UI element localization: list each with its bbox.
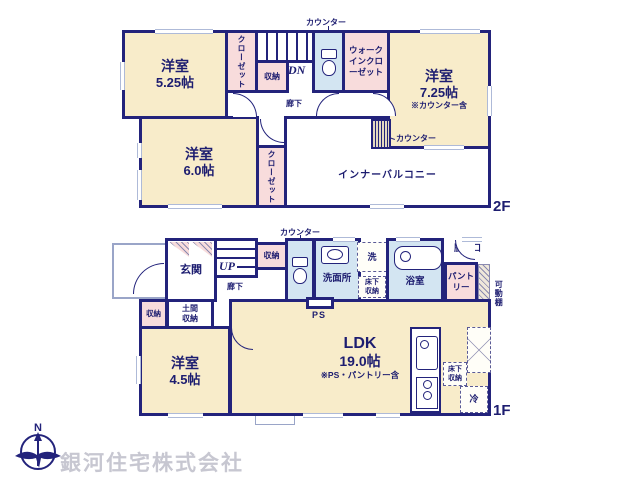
- laundry-box-1f: 洗: [357, 242, 387, 272]
- washroom-label: 洗面所: [323, 274, 352, 285]
- sink-icon: [321, 246, 349, 264]
- floor-1f-tag: 1F: [493, 402, 511, 419]
- bath-1f: 浴室: [386, 238, 444, 302]
- stairs-up-label: UP: [217, 260, 237, 274]
- toilet-icon: [321, 49, 337, 75]
- kitchen-sink-icon: [416, 336, 438, 370]
- backdoor-arc: [455, 240, 475, 260]
- window-1f: [462, 237, 482, 242]
- counter-2f-top-leader: [328, 26, 329, 32]
- storage-entry-1f: 収納: [139, 299, 168, 329]
- toilet-1f: [285, 238, 315, 302]
- ldk-note: ※PS・パントリー含: [321, 370, 399, 381]
- storage-entry-label: 収納: [146, 310, 161, 319]
- bathtub-icon: [394, 246, 442, 270]
- underfloor-wash-label: 床下収納: [364, 278, 380, 296]
- storage-hall-1f: 収納: [255, 242, 288, 270]
- floor-2f-tag: 2F: [493, 198, 511, 215]
- walkin-closet-label: ウォークインクローゼット: [347, 45, 385, 78]
- bedroom-45-name: 洋室: [171, 355, 199, 372]
- hallway-1f-label: 廊下: [227, 282, 243, 291]
- window-2f: [155, 29, 213, 34]
- bedroom-725-note: ※カウンター含: [411, 101, 467, 111]
- terrace-step: [255, 416, 295, 425]
- window-2f: [137, 170, 142, 200]
- walkin-closet-2f: ウォークインクローゼット: [342, 30, 390, 93]
- counter-1f-top-leader: [300, 235, 301, 240]
- ldk-name: LDK: [344, 334, 377, 353]
- underfloor-kitchen-label: 床下収納: [447, 365, 463, 383]
- ldk-1f: LDK 19.0帖 ※PS・パントリー含: [229, 299, 491, 416]
- window-2f: [370, 204, 404, 209]
- window-2f: [120, 62, 125, 90]
- pantry-label: パントリー: [448, 271, 474, 293]
- fridge-label: 冷: [469, 394, 478, 404]
- counter-2f-side: [371, 119, 391, 149]
- storage-2f-label: 収納: [264, 72, 280, 81]
- kitchen-counter: [410, 327, 441, 413]
- bedroom-725-2f: 洋室 7.25帖 ※カウンター含: [387, 30, 491, 149]
- window-1f: [376, 413, 400, 418]
- hallway-2f-label: 廊下: [286, 99, 302, 108]
- kitchen-stove-icon: [416, 377, 438, 409]
- bedroom-45-size: 4.5帖: [169, 372, 200, 388]
- fridge-1f: 冷: [460, 386, 488, 413]
- bedroom-725-size: 7.25帖: [420, 85, 458, 101]
- doma-storage-1f: 土間収納: [166, 299, 214, 329]
- toilet-2f: [312, 30, 345, 93]
- bedroom-525-size: 5.25帖: [156, 75, 194, 91]
- compass-n: N: [34, 422, 42, 434]
- compass: N: [10, 420, 66, 476]
- company-watermark: 銀河住宅株式会社: [60, 447, 244, 477]
- door-arc-2f: [260, 119, 284, 143]
- ps-box: [306, 297, 334, 309]
- bedroom-60-size: 6.0帖: [183, 163, 214, 179]
- storage-2f: 収納: [255, 60, 289, 93]
- window-1f: [136, 356, 141, 384]
- doma-label: 土間収納: [179, 304, 201, 325]
- shelf-right-label: 可動棚: [494, 280, 503, 307]
- window-2f: [487, 86, 492, 116]
- bedroom-60-name: 洋室: [185, 146, 213, 163]
- pantry-1f: パントリー: [444, 262, 478, 302]
- window-1f: [333, 237, 355, 242]
- storage-hall-label: 収納: [264, 251, 280, 260]
- underfloor-storage-kitchen: 床下収納: [443, 362, 467, 386]
- door-arc-2f: [233, 93, 257, 117]
- window-1f: [396, 237, 420, 242]
- window-2f: [424, 145, 464, 150]
- bedroom-525-name: 洋室: [161, 58, 189, 75]
- laundry-label: 洗: [367, 252, 376, 262]
- closet-2f-south: クローゼット: [256, 145, 287, 208]
- washroom-1f: 洗面所: [313, 238, 361, 302]
- closet-north-label: クローゼット: [236, 35, 247, 89]
- bedroom-725-name: 洋室: [425, 68, 453, 85]
- counter-2f-side-label: カウンター: [396, 134, 436, 143]
- closet-2f-north: クローゼット: [225, 30, 258, 93]
- bedroom-525-2f: 洋室 5.25帖: [122, 30, 228, 119]
- underfloor-storage-wash: 床下収納: [358, 276, 386, 298]
- floorplan-canvas: インナーバルコニー 洋室 5.25帖 クローゼット DN 収納 カウンター ウォ…: [0, 0, 640, 480]
- bedroom-45-1f: 洋室 4.5帖: [139, 326, 231, 416]
- shelf-cross-box: [467, 327, 491, 373]
- window-2f: [137, 143, 142, 158]
- window-2f: [168, 204, 222, 209]
- stairs-dn-label: DN: [288, 64, 305, 78]
- counter-2f-top-label: カウンター: [306, 18, 346, 27]
- balcony-label: インナーバルコニー: [338, 170, 437, 182]
- window-1f: [168, 413, 203, 418]
- bedroom-60-2f: 洋室 6.0帖: [139, 116, 259, 208]
- ps-label: PS: [312, 310, 326, 320]
- bath-label: 浴室: [405, 277, 424, 288]
- ldk-size: 19.0帖: [339, 353, 380, 370]
- stairs-2f: [255, 30, 315, 63]
- closet-south-label: クローゼット: [266, 150, 277, 204]
- door-arc-2f: [316, 93, 339, 116]
- window-2f: [420, 29, 480, 34]
- entrance-label: 玄関: [180, 264, 202, 277]
- window-1f: [303, 413, 343, 418]
- toilet-icon: [292, 257, 308, 283]
